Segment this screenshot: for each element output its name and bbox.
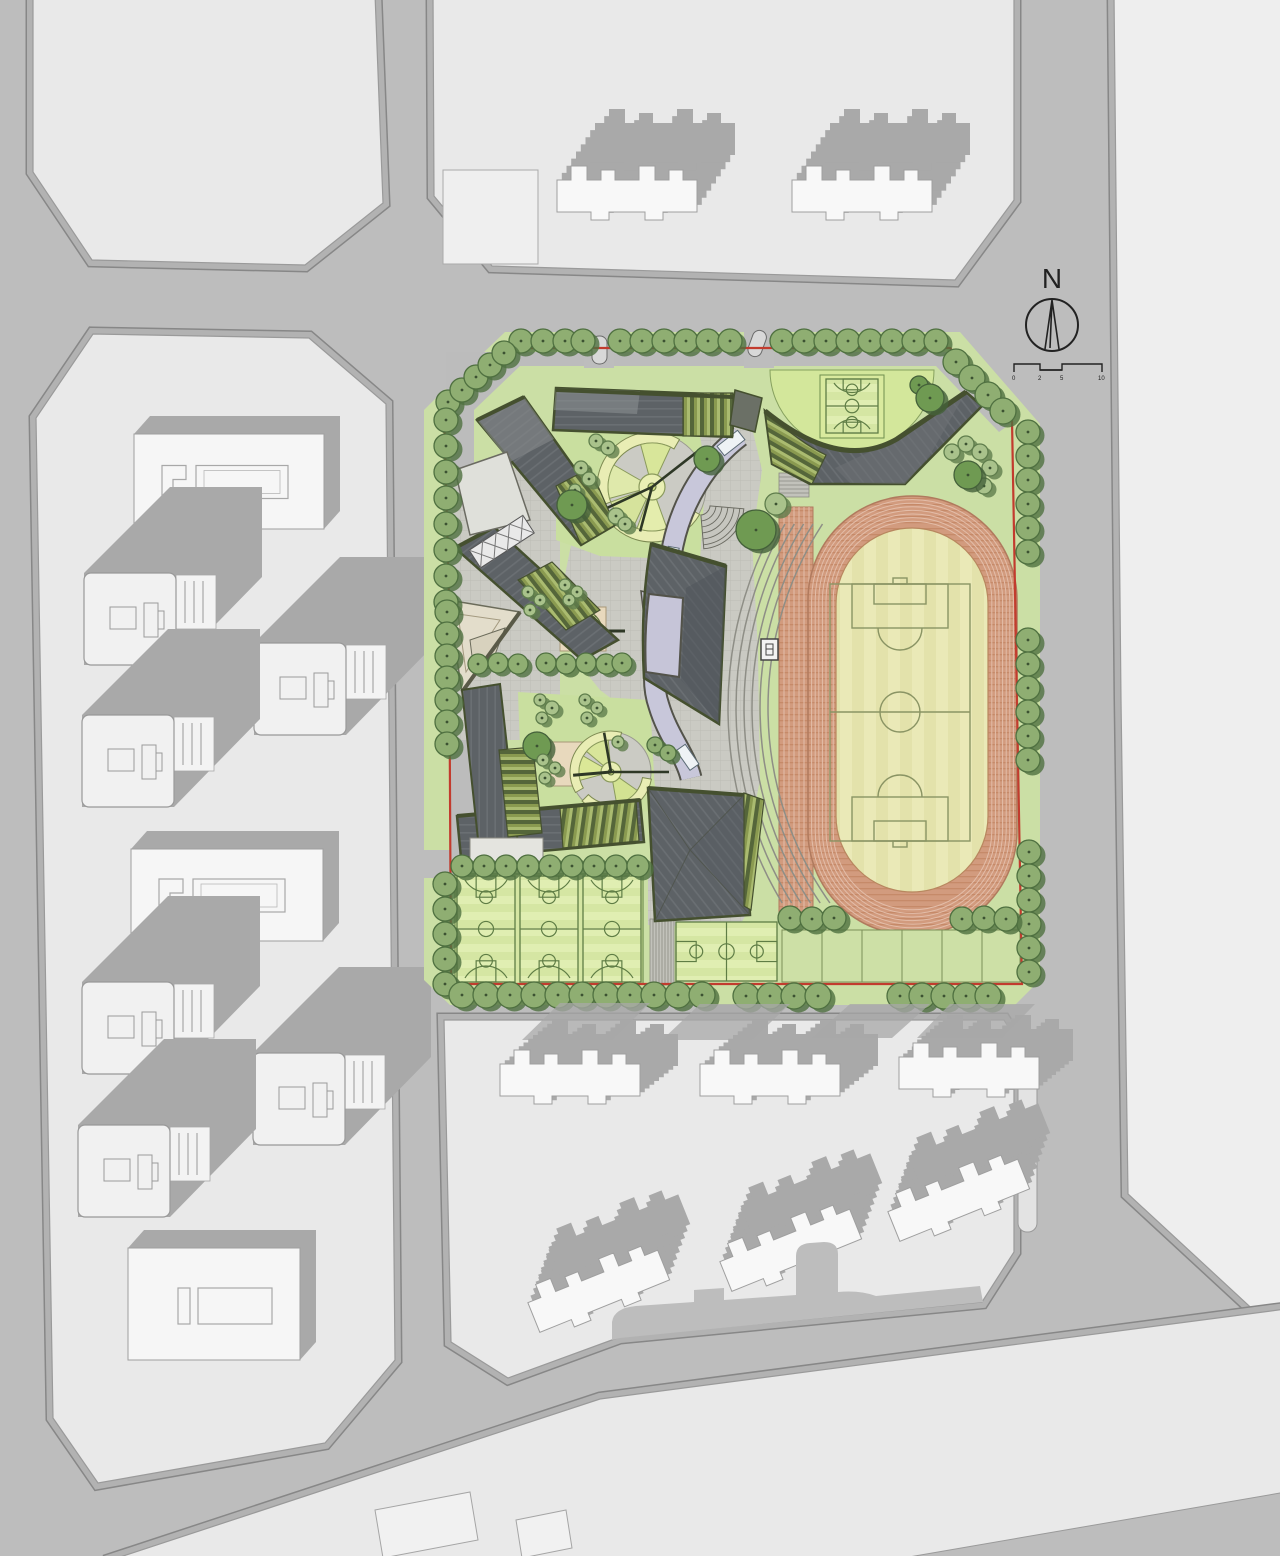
svg-text:N: N <box>1042 263 1062 294</box>
svg-text:10: 10 <box>1098 376 1105 382</box>
